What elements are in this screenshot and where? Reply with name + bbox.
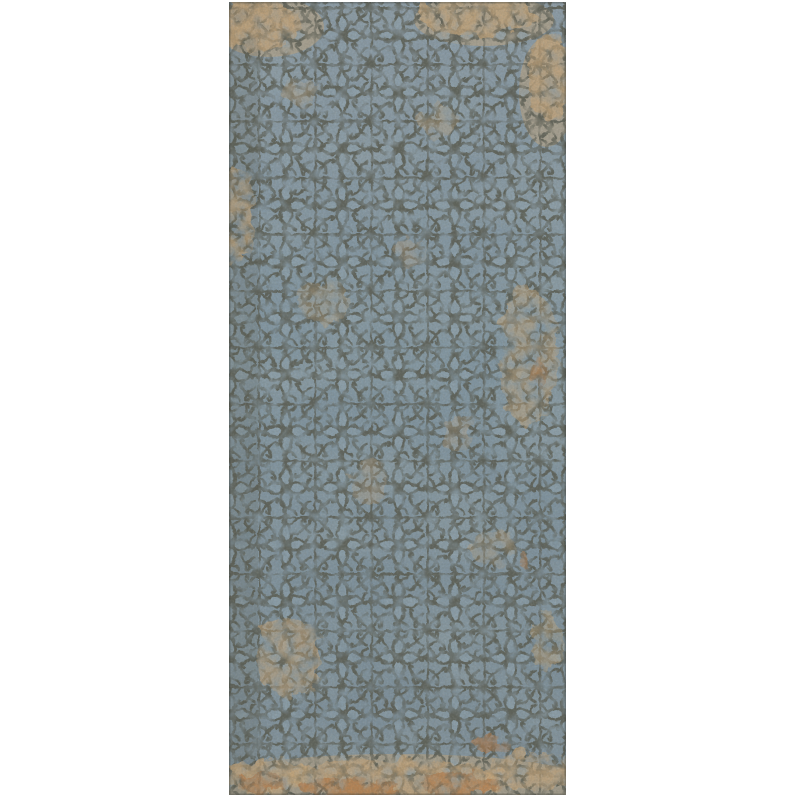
tile-grain-light-layer [229, 2, 566, 795]
tile-product-photo [229, 2, 566, 795]
tile-photo-svg [229, 2, 566, 795]
page-background [0, 0, 800, 800]
